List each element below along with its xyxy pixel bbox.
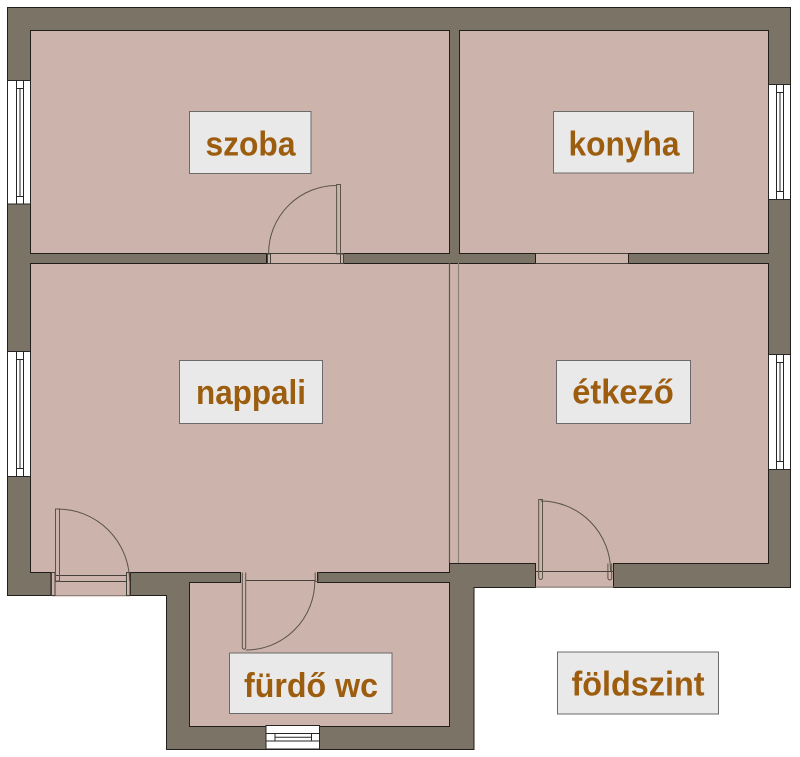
svg-text:konyha: konyha [569, 126, 681, 164]
svg-text:étkező: étkező [572, 374, 674, 412]
svg-text:földszint: földszint [572, 666, 705, 704]
svg-text:szoba: szoba [206, 126, 297, 164]
svg-text:fürdő wc: fürdő wc [244, 667, 378, 705]
svg-text:nappali: nappali [196, 374, 306, 412]
